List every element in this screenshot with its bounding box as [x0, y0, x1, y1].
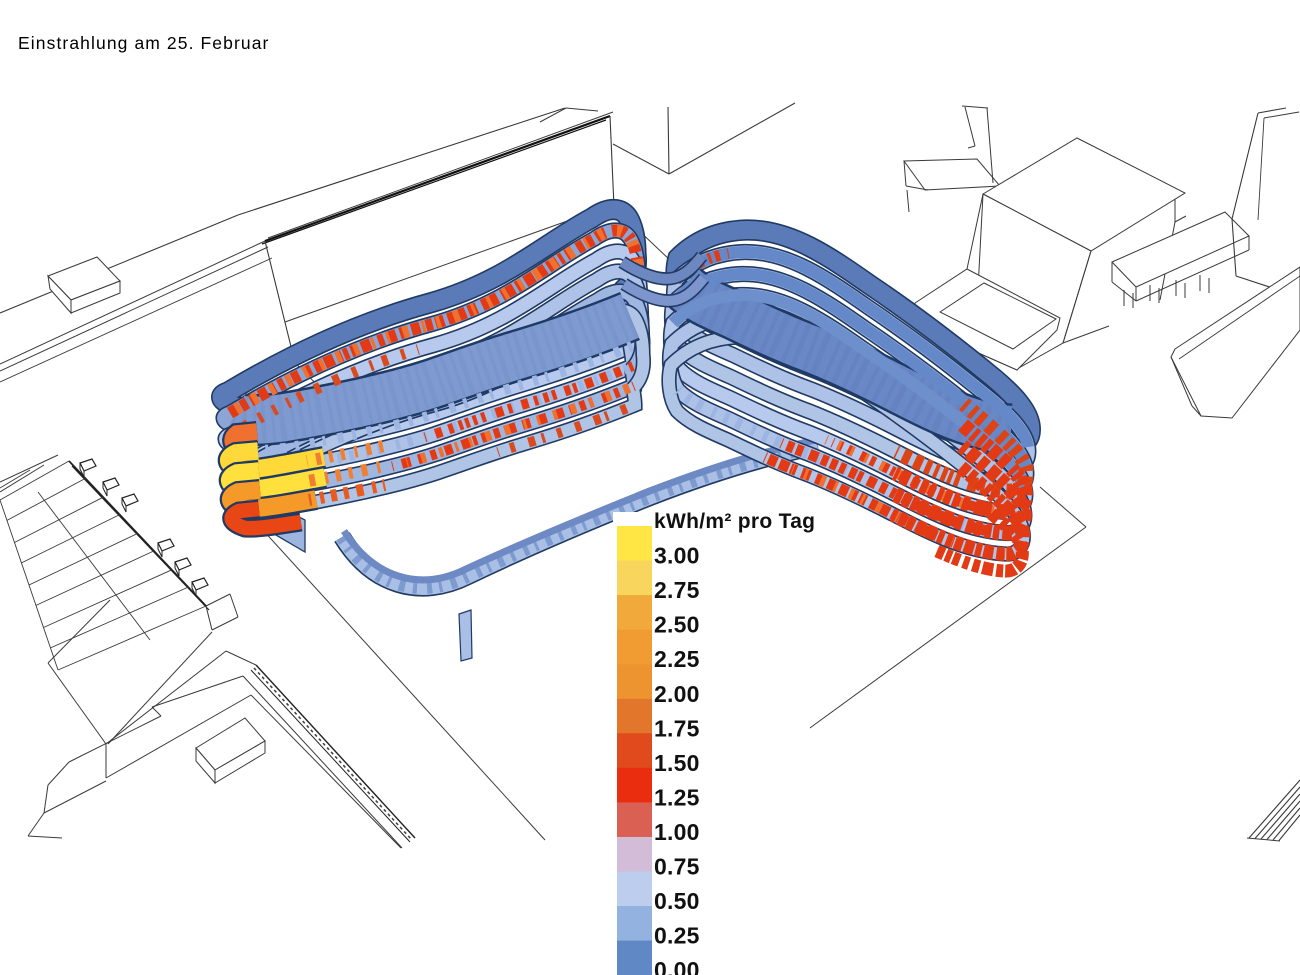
svg-text:2.50: 2.50 — [654, 612, 700, 638]
svg-text:1.25: 1.25 — [654, 784, 700, 810]
svg-text:1.50: 1.50 — [654, 750, 700, 776]
svg-text:2.00: 2.00 — [654, 681, 700, 707]
svg-text:0.25: 0.25 — [654, 923, 700, 949]
svg-text:kWh/m² pro Tag: kWh/m² pro Tag — [654, 510, 815, 533]
svg-text:0.00: 0.00 — [654, 957, 700, 975]
svg-text:1.00: 1.00 — [654, 819, 700, 845]
svg-text:1.75: 1.75 — [654, 715, 700, 741]
svg-text:2.25: 2.25 — [654, 646, 700, 672]
svg-text:2.75: 2.75 — [654, 577, 700, 603]
svg-text:0.75: 0.75 — [654, 854, 700, 880]
svg-text:0.50: 0.50 — [654, 888, 700, 914]
svg-text:3.00: 3.00 — [654, 543, 700, 569]
